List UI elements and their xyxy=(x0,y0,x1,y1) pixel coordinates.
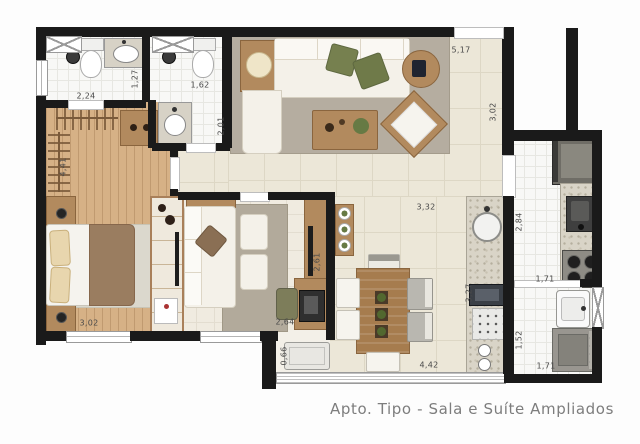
fridge-top xyxy=(561,144,593,178)
window-bedroom xyxy=(66,331,132,343)
wall-bottom xyxy=(130,331,200,341)
faucet-icon xyxy=(172,107,177,112)
wall-bedroom-bottom xyxy=(36,331,66,341)
ottoman xyxy=(240,254,268,290)
nightstand-lamp xyxy=(56,208,67,219)
entry-door xyxy=(454,27,504,39)
dimension-label: 2,24 xyxy=(76,92,95,101)
shelf-decor xyxy=(158,204,166,212)
plant-icon xyxy=(353,118,369,134)
dimension-label: 2,84 xyxy=(515,212,524,231)
wall-kitchen-top xyxy=(507,130,602,141)
wall-service-bottom xyxy=(504,374,602,383)
burner xyxy=(567,255,581,269)
planter-icon xyxy=(338,239,351,252)
dining-chair xyxy=(407,312,433,342)
toilet-icon xyxy=(192,50,214,78)
door-suite xyxy=(170,157,180,191)
dimension-label: 3,32 xyxy=(416,203,435,212)
coffee-table-decor xyxy=(339,119,345,125)
faucet-icon xyxy=(581,306,586,311)
dimension-label: 4,42 xyxy=(419,361,438,370)
fridge-handle xyxy=(553,140,558,182)
centerpiece-pot xyxy=(375,291,388,304)
dining-chair xyxy=(366,352,400,372)
centerpiece-pot xyxy=(375,325,388,338)
table-decor xyxy=(412,60,426,77)
bed-blanket xyxy=(89,224,135,306)
wall-kitchen-peninsula xyxy=(503,196,514,374)
office-sofa-back xyxy=(185,207,202,305)
dimension-label: 1,71 xyxy=(536,362,555,371)
dimension-label: 5,17 xyxy=(451,46,470,55)
sink-oval xyxy=(113,45,139,63)
faucet-icon xyxy=(484,206,490,212)
wall-suite-right xyxy=(170,143,178,157)
balcony-bench xyxy=(284,342,330,370)
dimension-label: 1,27 xyxy=(131,69,140,88)
round-sink xyxy=(164,114,186,136)
sofa-chaise xyxy=(242,90,282,154)
laundry-sink xyxy=(556,290,590,328)
wall-bath-divider xyxy=(142,36,150,102)
dining-chair xyxy=(336,310,360,340)
computer-icon xyxy=(299,290,325,322)
door-suite-bathroom xyxy=(68,100,104,110)
chair-back xyxy=(369,255,399,261)
plan-caption: Apto. Tipo - Sala e Suíte Ampliados xyxy=(330,400,614,418)
dimension-label: 4,41 xyxy=(59,157,68,176)
computer-screen xyxy=(304,296,318,314)
sink-basin xyxy=(571,201,589,221)
window-left-wall xyxy=(36,60,48,96)
dimension-label: 1,62 xyxy=(190,81,209,90)
shelf-decor xyxy=(165,215,175,225)
chair-back xyxy=(425,313,432,339)
dining-table xyxy=(356,268,410,354)
dimension-label: 3,02 xyxy=(79,319,98,328)
shelf-box-dot xyxy=(164,304,169,309)
coffee-table-decor xyxy=(325,123,334,132)
dining-chair xyxy=(407,278,433,310)
planter-icon xyxy=(338,207,351,220)
door-kitchen xyxy=(502,155,516,198)
dimension-label: 1,52 xyxy=(515,330,524,349)
washer-drum xyxy=(558,334,588,366)
bench-inner xyxy=(289,347,325,365)
round-sink xyxy=(472,212,502,242)
tv-icon xyxy=(175,232,179,286)
nightstand-lamp xyxy=(56,312,67,323)
knob-icon xyxy=(478,358,491,371)
planter-icon xyxy=(338,223,351,236)
control-panel xyxy=(472,308,504,340)
wall-office-dining xyxy=(326,192,335,340)
table-lamp-icon xyxy=(246,52,272,78)
door-office xyxy=(240,192,270,202)
wall-office-top xyxy=(268,192,330,200)
dining-chair xyxy=(336,278,360,308)
dimension-label: 3,27 xyxy=(465,283,474,302)
dimension-label: 2,61 xyxy=(313,252,322,271)
wall-alcove-bottom xyxy=(152,143,186,151)
vanity xyxy=(104,38,146,68)
wall-bath-bottom xyxy=(102,100,146,108)
faucet-icon xyxy=(578,224,584,230)
dimension-label: 2,01 xyxy=(217,116,226,135)
vanity xyxy=(158,102,192,148)
armchair-cushion xyxy=(391,101,438,148)
chair-back xyxy=(425,279,432,307)
office-sofa xyxy=(184,206,236,308)
wall-office-top xyxy=(178,192,240,200)
knob-icon xyxy=(478,344,491,357)
appliance-inner xyxy=(475,289,499,301)
faucet-icon xyxy=(122,40,126,44)
wall-top xyxy=(36,27,454,37)
toilet-icon xyxy=(80,50,102,78)
wall-suite-right xyxy=(170,189,178,196)
window-service xyxy=(592,287,604,329)
window-bath-2 xyxy=(152,36,194,53)
dimension-label: 2,64 xyxy=(275,318,294,327)
double-bed xyxy=(46,224,134,306)
window-office xyxy=(200,331,262,343)
wall-alcove-left xyxy=(148,100,156,148)
ottoman xyxy=(240,214,268,250)
window-dining-glass xyxy=(276,372,506,384)
plant-icon xyxy=(377,293,386,302)
bed-pillow xyxy=(49,267,71,304)
wall-balcony-left xyxy=(262,331,276,389)
bed-pillow xyxy=(49,230,71,267)
dresser-knob xyxy=(130,124,137,131)
centerpiece-pot xyxy=(375,308,388,321)
wall-service-divider xyxy=(580,279,592,287)
dimension-label: 1,71 xyxy=(535,275,554,284)
dimension-label: 0,66 xyxy=(280,346,289,365)
dimension-label: 3,02 xyxy=(489,102,498,121)
plant-icon xyxy=(377,327,386,336)
wall-bath-bottom xyxy=(36,100,68,108)
coffee-table xyxy=(312,110,378,150)
desk-chair xyxy=(276,288,298,320)
wall-kitchen-right xyxy=(592,133,602,287)
shelf-box xyxy=(154,298,178,324)
door-bathroom-2 xyxy=(186,143,216,153)
plant-icon xyxy=(377,310,386,319)
wall-outer-right-stub xyxy=(566,28,578,133)
floor-plan: 2,241,271,622,014,415,173,023,022,612,64… xyxy=(0,0,640,444)
counter-appliance xyxy=(469,284,505,306)
window-bath-suite xyxy=(46,36,82,53)
